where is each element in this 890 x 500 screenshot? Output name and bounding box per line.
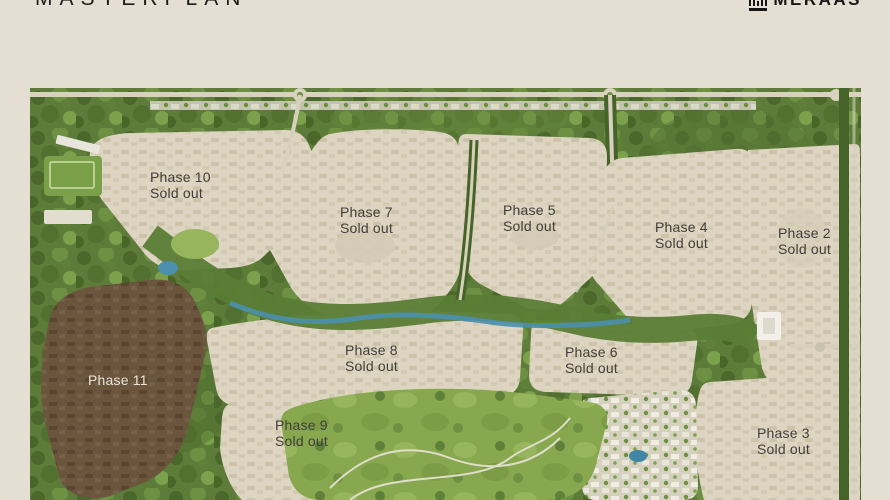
phase-status: Sold out [778, 242, 831, 258]
phase-name: Phase 4 [655, 220, 708, 236]
park-pond [158, 261, 178, 275]
phase-status: Sold out [503, 219, 556, 235]
page-title: MASTERPLAN [35, 0, 247, 9]
phase-name: Phase 5 [503, 203, 556, 219]
phase-status: Sold out [655, 236, 708, 252]
top-road [30, 92, 861, 97]
phase-label-phase-2: Phase 2 Sold out [778, 226, 831, 257]
top-house-row [150, 101, 756, 110]
phase-status: Sold out [340, 221, 393, 237]
community-building [44, 210, 92, 224]
phase-status: Sold out [757, 442, 810, 458]
amphitheatre-lawn [171, 229, 219, 259]
central-park [281, 389, 607, 500]
brand-name: MERAAS [773, 0, 862, 8]
phase-status: Sold out [275, 434, 328, 450]
phase-name: Phase 8 [345, 343, 398, 359]
phase-status: Sold out [565, 361, 618, 377]
meraas-logo-icon [749, 0, 768, 11]
phase-label-phase-4: Phase 4 Sold out [655, 220, 708, 251]
village-pool [629, 450, 647, 462]
phase-label-phase-8: Phase 8 Sold out [345, 343, 398, 374]
phase-label-phase-11: Phase 11 [88, 373, 148, 389]
phase-label-phase-3: Phase 3 Sold out [757, 426, 810, 457]
phase-name: Phase 2 [778, 226, 831, 242]
phase-name: Phase 11 [88, 373, 148, 389]
masterplan-map: Phase 10 Sold out Phase 7 Sold out Phase… [30, 88, 861, 500]
phase-label-phase-5: Phase 5 Sold out [503, 203, 556, 234]
phase-label-phase-6: Phase 6 Sold out [565, 345, 618, 376]
phase-label-phase-10: Phase 10 Sold out [150, 170, 211, 201]
phase-name: Phase 6 [565, 345, 618, 361]
phase-status: Sold out [150, 186, 211, 202]
phase-label-phase-9: Phase 9 Sold out [275, 418, 328, 449]
masterplan-aerial-render [30, 88, 861, 500]
brand-logo: MERAAS [749, 0, 862, 11]
phase-label-phase-7: Phase 7 Sold out [340, 205, 393, 236]
phase-name: Phase 9 [275, 418, 328, 434]
phase-status: Sold out [345, 359, 398, 375]
phase-name: Phase 7 [340, 205, 393, 221]
phase-name: Phase 3 [757, 426, 810, 442]
phase-name: Phase 10 [150, 170, 211, 186]
